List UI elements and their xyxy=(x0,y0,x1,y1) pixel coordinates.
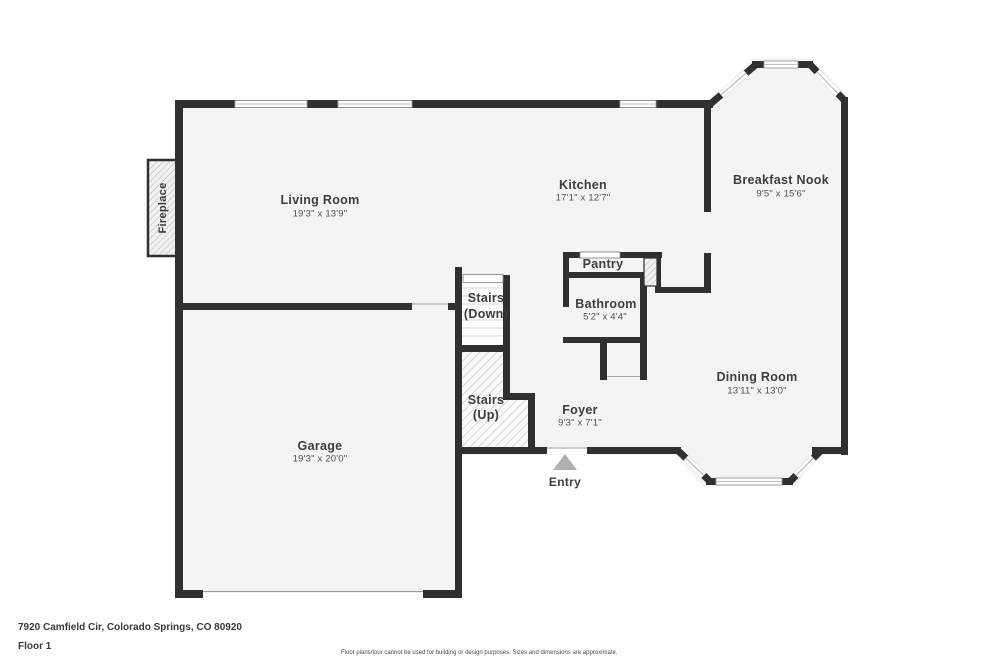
room-label-dining-room: Dining Room xyxy=(716,370,797,384)
stairs-door xyxy=(463,275,503,283)
floor-footprint xyxy=(175,58,848,598)
room-sub-stairs-down: (Down) xyxy=(464,307,508,321)
room-label-garage: Garage xyxy=(298,439,343,453)
room-dims-living-room: 19'3" x 13'9" xyxy=(293,209,348,220)
room-dims-garage: 19'3" x 20'0" xyxy=(293,454,348,465)
footer-address: 7920 Camfield Cir, Colorado Springs, CO … xyxy=(18,622,242,633)
room-dims-kitchen: 17'1" x 12'7" xyxy=(556,193,611,204)
room-label-bathroom: Bathroom xyxy=(575,297,636,311)
room-sub-stairs-up: (Up) xyxy=(473,408,499,422)
floorplan-page: Living Room 19'3" x 13'9" Kitchen 17'1" … xyxy=(0,0,1000,667)
room-dims-dining-room: 13'11" x 13'0" xyxy=(727,386,786,397)
room-label-breakfast-nook: Breakfast Nook xyxy=(733,173,829,187)
room-label-living-room: Living Room xyxy=(281,193,360,207)
floorplan-drawing xyxy=(0,0,1000,667)
fireplace-label: Fireplace xyxy=(157,182,169,233)
room-label-stairs-down: Stairs xyxy=(468,291,505,305)
entry-label: Entry xyxy=(549,475,581,489)
room-dims-bathroom: 5'2" x 4'4" xyxy=(583,312,627,323)
chimney-hatch xyxy=(644,258,657,286)
room-dims-foyer: 9'3" x 7'1" xyxy=(558,418,602,429)
room-label-stairs-up: Stairs xyxy=(468,393,505,407)
entry-arrow-icon xyxy=(553,454,577,470)
room-label-foyer: Foyer xyxy=(562,403,598,417)
footer-disclaimer: Floor plans/tour cannot be used for buil… xyxy=(341,650,618,656)
footer-floor-label: Floor 1 xyxy=(18,641,51,652)
room-label-kitchen: Kitchen xyxy=(559,178,607,192)
room-label-pantry: Pantry xyxy=(583,257,624,271)
room-dims-breakfast-nook: 9'5" x 15'6" xyxy=(756,189,805,200)
